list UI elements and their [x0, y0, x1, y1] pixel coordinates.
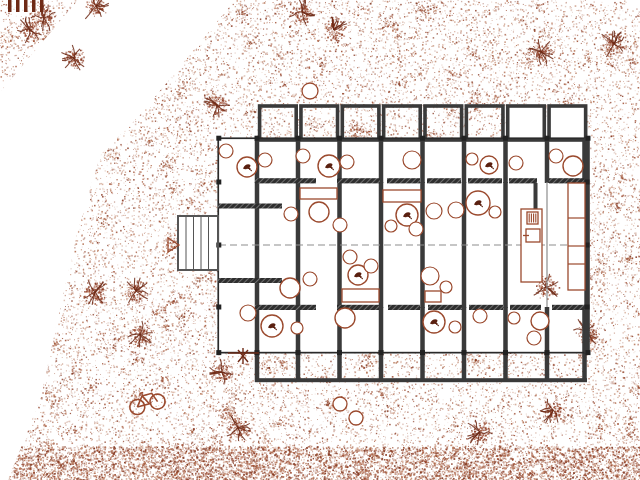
chair [303, 272, 317, 286]
wall [255, 307, 260, 382]
patio-bay-outline [549, 106, 586, 140]
insulated-wall [388, 305, 420, 310]
chair [291, 322, 303, 334]
wall [503, 307, 508, 382]
shelf-unit [568, 183, 585, 290]
chair [296, 149, 310, 163]
chair [466, 153, 478, 165]
fence-bar [16, 0, 20, 12]
column-tick [585, 305, 590, 310]
patio-bay-outline [508, 106, 545, 140]
chair [489, 206, 501, 218]
patio-bay-outline [260, 106, 297, 140]
chair [219, 144, 233, 158]
tree-circle [333, 397, 347, 411]
insulated-wall [509, 178, 537, 183]
chair [284, 207, 298, 221]
fence-bar [40, 0, 44, 12]
fence-bar [32, 0, 36, 12]
chair [448, 202, 464, 218]
insulated-wall [510, 305, 541, 310]
chair [258, 153, 272, 167]
insulated-wall [255, 305, 316, 310]
insulated-wall [337, 178, 380, 183]
facade-line [218, 352, 590, 354]
chair [403, 151, 421, 169]
chair [473, 309, 487, 323]
table-rect [342, 289, 379, 302]
wall [545, 140, 550, 183]
insulated-wall [427, 178, 461, 183]
fence-bar [24, 0, 28, 12]
column-tick [296, 136, 301, 141]
round-table [335, 308, 355, 328]
chair [549, 149, 563, 163]
tree-circle [349, 411, 363, 425]
insulated-wall [552, 305, 586, 310]
column-tick [379, 350, 384, 355]
column-tick [545, 350, 550, 355]
column-tick [379, 136, 384, 141]
chair [333, 218, 347, 232]
facade-line [218, 137, 590, 139]
table-rect [383, 190, 421, 202]
column-tick [216, 305, 221, 310]
wall [296, 307, 301, 382]
wall [462, 307, 467, 382]
column-tick [296, 350, 301, 355]
chair [449, 321, 461, 333]
insulated-wall [255, 178, 316, 183]
chair [421, 267, 439, 285]
insulated-wall [218, 278, 282, 283]
column-tick [503, 350, 508, 355]
insulated-wall [218, 204, 282, 209]
chair [340, 155, 354, 169]
column-tick [255, 136, 260, 141]
column-tick [462, 350, 467, 355]
column-tick [586, 350, 591, 355]
column-tick [586, 136, 591, 141]
table-rect [300, 188, 337, 199]
chair [440, 281, 452, 293]
patio-bay-outline [466, 106, 503, 140]
column-tick [503, 136, 508, 141]
bicycle-icon [127, 387, 167, 417]
patio-bay-outline [425, 106, 462, 140]
floor-plan-svg [0, 0, 640, 480]
chair [426, 203, 442, 219]
column-tick [337, 136, 342, 141]
fence-bar [8, 0, 12, 12]
chair [240, 305, 256, 321]
insulated-wall [468, 178, 502, 183]
column-tick [420, 136, 425, 141]
chair [364, 259, 378, 273]
tree-circle [302, 83, 318, 99]
column-tick [216, 136, 221, 141]
round-table [280, 278, 300, 298]
patio-bay-outline [301, 106, 338, 140]
column-tick [545, 136, 550, 141]
wall [462, 140, 467, 183]
round-table [531, 312, 549, 330]
chair [527, 331, 541, 345]
wall-stub [534, 183, 538, 209]
wall-cap [255, 378, 587, 382]
column-tick [420, 350, 425, 355]
wall [379, 140, 384, 183]
patio-bay-outline [384, 106, 421, 140]
insulated-wall [428, 305, 462, 310]
chair [409, 222, 423, 236]
chair [385, 220, 397, 232]
column-tick [337, 350, 342, 355]
round-table [563, 156, 583, 176]
wall [379, 307, 384, 382]
entry-deck [178, 216, 218, 270]
insulated-wall [387, 178, 420, 183]
patio-bay-outline [342, 106, 379, 140]
column-tick [216, 180, 221, 185]
chair [509, 156, 523, 170]
chair [508, 312, 520, 324]
chair [343, 250, 357, 264]
round-table [309, 202, 329, 222]
table-rect [425, 291, 441, 302]
column-tick [462, 136, 467, 141]
column-tick [216, 350, 221, 355]
wall [503, 140, 508, 183]
insulated-wall [469, 305, 503, 310]
site-plan-stage [0, 0, 640, 480]
